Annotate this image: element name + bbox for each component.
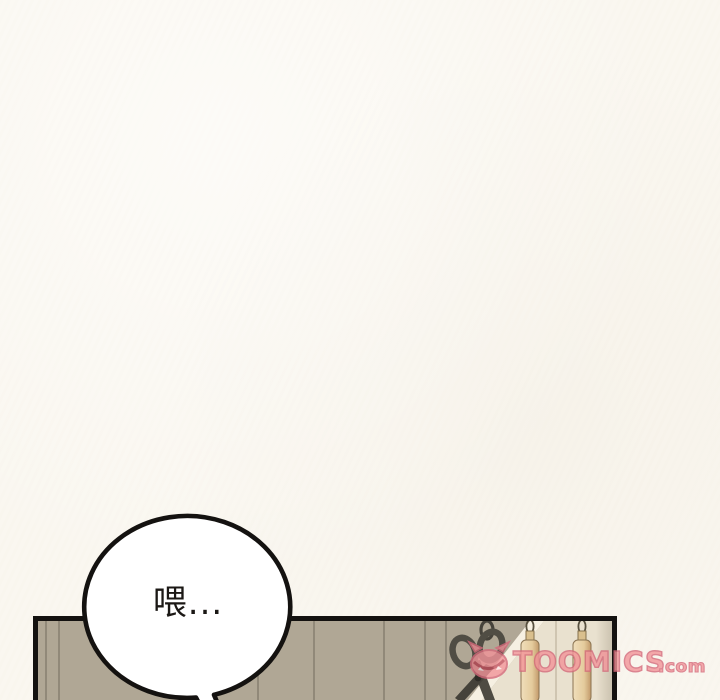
hanging-stick-left [521, 621, 539, 700]
hanging-stick-right [573, 621, 591, 700]
speech-bubble-text: 喂... [118, 585, 258, 622]
hanging-scissors [449, 621, 506, 700]
